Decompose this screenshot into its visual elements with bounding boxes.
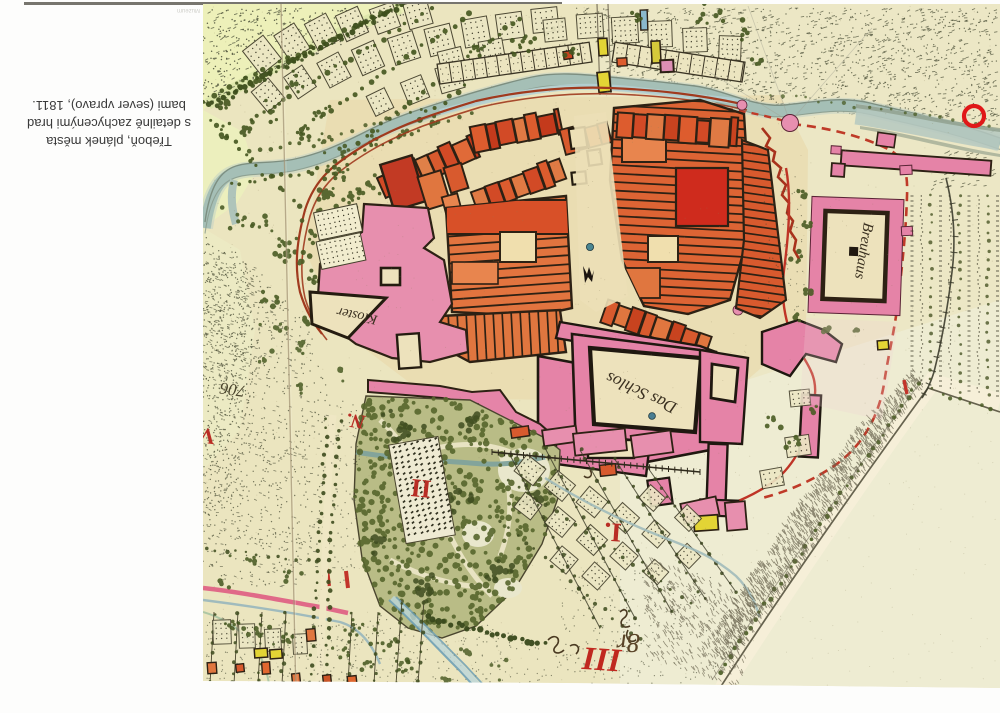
svg-text:N.: N.	[344, 408, 367, 433]
svg-text:8r: 8r	[615, 628, 641, 659]
svg-text:V: V	[197, 423, 216, 450]
svg-text:II: II	[409, 473, 432, 504]
svg-text:706: 706	[218, 378, 246, 400]
svg-text:I.: I.	[603, 517, 622, 548]
